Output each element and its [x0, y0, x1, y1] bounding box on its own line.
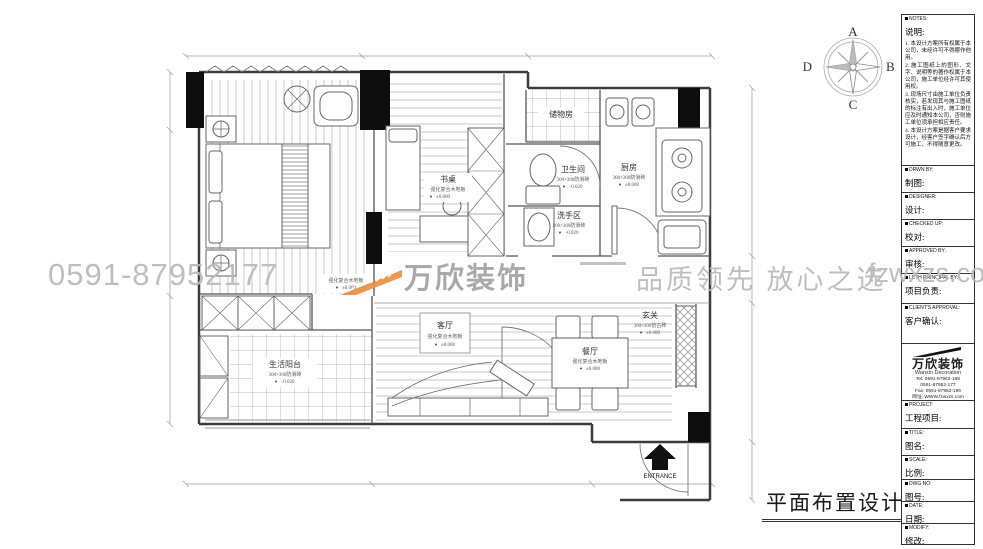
bullet-icon [905, 276, 908, 279]
field-project: PROJECT: 工程项目: [902, 400, 974, 428]
level-marker-icon: ▼ [579, 366, 583, 371]
company-brand: 万欣装饰 [905, 358, 971, 370]
compass-right-label: B [886, 59, 895, 74]
floor-plan: ENTRANCE 储物房 书桌 强化复合木地板 ±0.000 ▼ 卫生间 300… [0, 0, 983, 549]
field-dwg-no: DWG NO: 图号: [902, 479, 974, 501]
field-date: DATE: 日期: [902, 501, 974, 523]
compass-bottom-label: C [849, 97, 858, 112]
svg-text:强化复合木地板: 强化复合木地板 [430, 186, 465, 193]
room-label-kitchen: 厨房 [621, 162, 637, 172]
field-drawn-by: DRWN BY: 制图: [902, 165, 974, 192]
level-marker-icon: ▼ [618, 182, 622, 187]
level-marker-icon: ▼ [274, 379, 278, 384]
svg-text:-0.020: -0.020 [282, 380, 295, 385]
bullet-icon [905, 526, 908, 529]
level-marker-icon: ▼ [558, 230, 562, 235]
field-designer: DESIGNER: 设计: [902, 192, 974, 219]
bullet-icon [905, 17, 908, 20]
field-principal: LETH PRINCIPAL BY: 项目负责: [902, 273, 974, 303]
note-item: 1. 本设计方案所有权属于本公司，未经许可不得挪作他用。 [905, 41, 971, 62]
room-label-desk: 书桌 [440, 174, 456, 184]
level-marker-icon: ▼ [429, 194, 433, 199]
notes-title: 说明: [905, 27, 924, 37]
bathroom-fixtures [524, 154, 560, 246]
bullet-icon [905, 222, 908, 225]
field-checked: CHECKED UP: 校对: [902, 219, 974, 246]
svg-text:±0.000: ±0.000 [342, 286, 356, 291]
shoe-cabinet [676, 306, 696, 386]
bullet-icon [905, 168, 908, 171]
room-label-dining: 餐厅 [582, 347, 598, 356]
bullet-icon [905, 458, 908, 461]
note-item: 2. 施工图纸上的图形、文字、说明等的著作权属于本公司，施工单位经许可其使用权。 [905, 63, 971, 91]
bullet-icon [905, 249, 908, 252]
room-label-living: 客厅 [437, 320, 453, 330]
svg-text:±0.000: ±0.000 [586, 367, 600, 372]
field-approved: APPROVED BY: 审核: [902, 246, 974, 273]
room-label-bathroom: 卫生间 [561, 164, 585, 174]
svg-text:-0.020: -0.020 [566, 231, 579, 236]
bullet-icon [905, 195, 908, 198]
svg-text:强化复合木地板: 强化复合木地板 [572, 358, 607, 365]
level-marker-icon: ▼ [639, 330, 643, 335]
entrance-arrow-icon: ENTRANCE [643, 444, 676, 480]
bullet-icon [905, 306, 908, 309]
field-title: TITLE: 图名: [902, 428, 974, 455]
svg-text:300×300防滑砖: 300×300防滑砖 [269, 371, 302, 378]
field-scale: SCALE: 比例: [902, 455, 974, 479]
bullet-icon [905, 431, 908, 434]
bedroom-floor-note: 强化复合木地板 [328, 277, 363, 284]
svg-text:±0.000: ±0.000 [646, 331, 660, 336]
svg-text:±0.000: ±0.000 [625, 183, 639, 188]
svg-text:强化复合木地板: 强化复合木地板 [427, 333, 462, 340]
room-label-wash: 洗手区 [557, 210, 581, 220]
wardrobe [202, 296, 310, 330]
bullet-icon [905, 403, 908, 406]
svg-text:300×300仿古砖: 300×300仿古砖 [634, 322, 667, 329]
svg-text:-0.020: -0.020 [570, 185, 583, 190]
bullet-icon [905, 504, 908, 507]
entrance-label: ENTRANCE [643, 474, 676, 480]
bullet-icon [905, 482, 908, 485]
room-label-balcony: 生活阳台 [269, 359, 301, 369]
svg-text:±0.000: ±0.000 [436, 195, 450, 200]
room-label-entry: 玄关 [642, 310, 658, 320]
notes-section: NOTES: 说明: 1. 本设计方案所有权属于本公司，未经许可不得挪作他用。 … [902, 15, 974, 165]
note-item: 3. 现场尺寸由施工单位负责核实，若发现其与施工图纸的标注有出入时，施工单位应及… [905, 92, 971, 127]
level-marker-icon: ▼ [434, 342, 438, 347]
room-label-storage: 储物房 [549, 109, 573, 119]
compass-top-label: A [848, 24, 858, 39]
title-block: NOTES: 说明: 1. 本设计方案所有权属于本公司，未经许可不得挪作他用。 … [901, 14, 975, 545]
level-marker-icon: ▼ [562, 184, 566, 189]
level-marker-icon: ▼ [335, 285, 339, 290]
svg-text:300×300防滑砖: 300×300防滑砖 [557, 176, 590, 183]
company-block: 万欣装饰 Wanxin Decoration Tel: 0591-87952-1… [902, 343, 974, 400]
svg-text:300×300防滑砖: 300×300防滑砖 [613, 174, 646, 181]
drawing-sheet: ENTRANCE 储物房 书桌 强化复合木地板 ±0.000 ▼ 卫生间 300… [0, 0, 983, 549]
compass: A B C D [803, 24, 895, 112]
company-brand-en: Wanxin Decoration [905, 370, 971, 377]
field-modify: MODIFY: 修改: [902, 523, 974, 544]
balcony-fixtures [200, 336, 228, 418]
svg-text:300×300防滑砖: 300×300防滑砖 [553, 222, 586, 229]
svg-text:±0.000: ±0.000 [441, 343, 455, 348]
note-item: 4. 本设计方案是据客户要求设计，经客户签字确认后方可施工，不得随意更改。 [905, 128, 971, 149]
field-client-approval: CLIENT'S APPROVAL: 客户确认: [902, 303, 974, 343]
compass-left-label: D [803, 59, 812, 74]
